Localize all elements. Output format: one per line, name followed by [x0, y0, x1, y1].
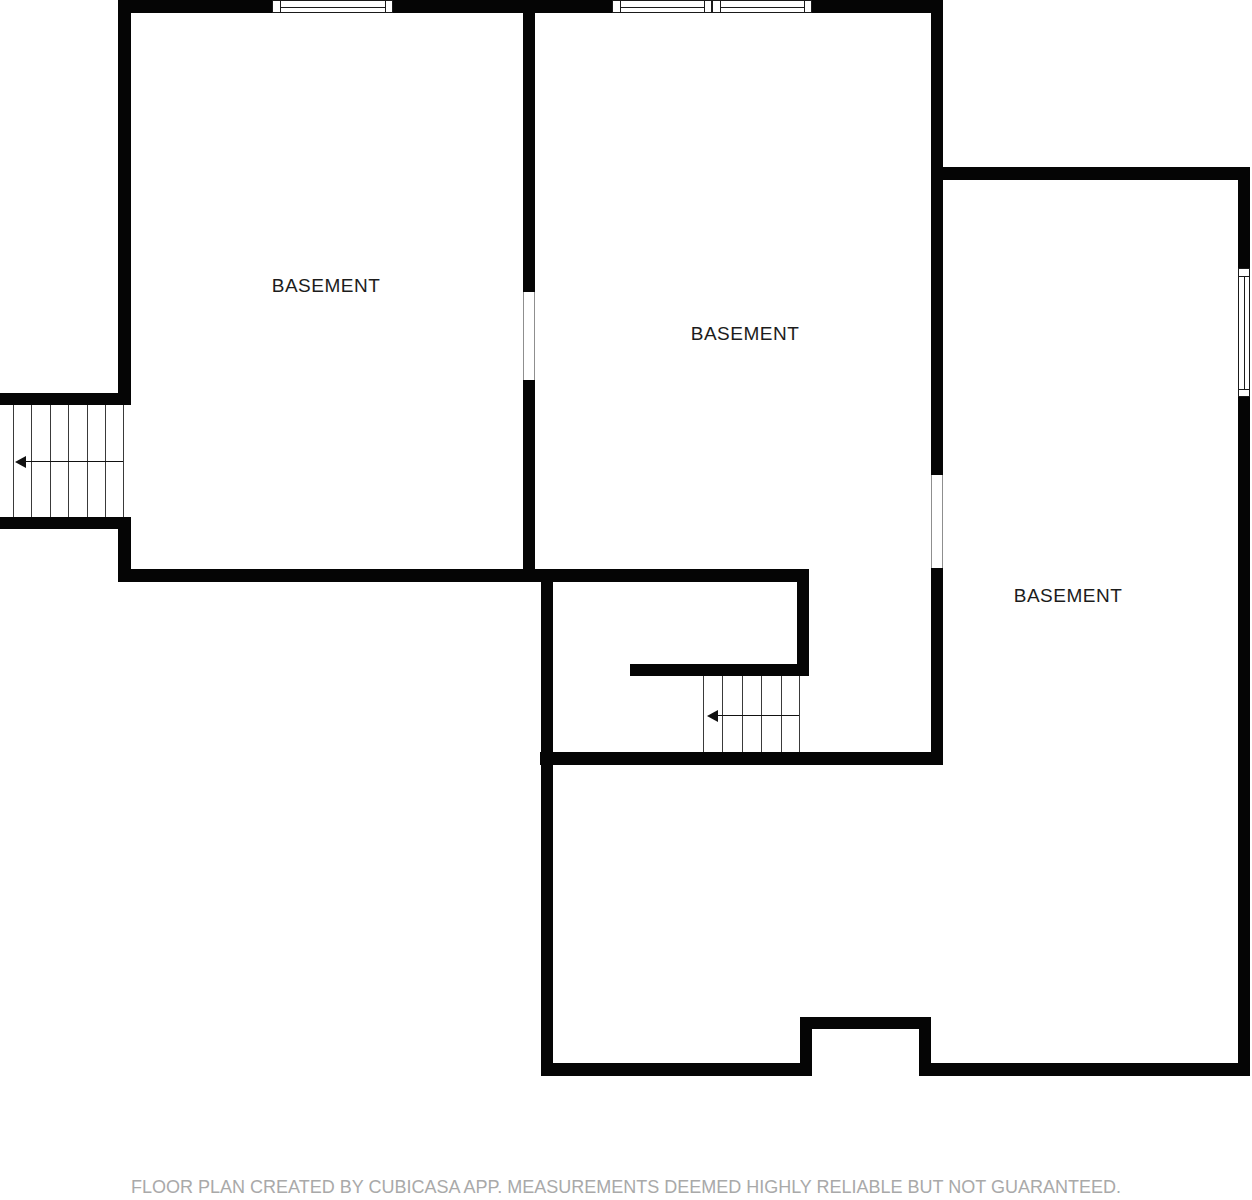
window-pane-line: [281, 7, 385, 8]
door-opening: [931, 475, 943, 568]
stair-direction-arrow: [24, 461, 123, 462]
stair-tread: [13, 405, 14, 517]
door-opening: [523, 292, 535, 380]
window-pane-line: [804, 1, 805, 12]
wall: [541, 569, 553, 1076]
stair-tread: [722, 676, 723, 752]
stair-tread: [123, 405, 124, 517]
wall: [1238, 167, 1250, 268]
room-label: BASEMENT: [1014, 585, 1123, 607]
staircase-interior: [703, 676, 800, 752]
room-label: BASEMENT: [691, 323, 800, 345]
wall: [1238, 397, 1250, 1076]
footer-disclaimer: FLOOR PLAN CREATED BY CUBICASA APP. MEAS…: [131, 1177, 1121, 1198]
stair-tread: [799, 676, 800, 752]
stair-arrowhead-icon: [707, 710, 718, 722]
stair-tread: [742, 676, 743, 752]
window-pane-line: [621, 7, 704, 8]
stair-arrowhead-icon: [15, 456, 26, 468]
window-pane-line: [1244, 277, 1245, 389]
stair-tread: [781, 676, 782, 752]
window-icon: [712, 0, 812, 13]
floor-plan-canvas: FLOOR PLAN CREATED BY CUBICASA APP. MEAS…: [0, 0, 1252, 1200]
window-icon: [1238, 268, 1250, 397]
window-icon: [612, 0, 712, 13]
wall: [541, 1063, 812, 1076]
wall: [797, 569, 809, 676]
window-pane-line: [1239, 389, 1249, 390]
room-label: BASEMENT: [272, 275, 381, 297]
stair-tread: [761, 676, 762, 752]
window-pane-line: [704, 1, 705, 12]
wall: [523, 0, 535, 292]
wall: [0, 393, 131, 405]
wall: [931, 568, 943, 765]
staircase-left-exterior: [0, 405, 125, 517]
stair-direction-arrow: [716, 715, 799, 716]
wall: [630, 664, 809, 676]
wall: [931, 167, 1250, 180]
window-pane-line: [721, 7, 804, 8]
wall: [919, 1063, 1250, 1076]
wall: [0, 517, 131, 529]
wall: [931, 0, 943, 475]
wall: [118, 0, 131, 405]
stair-tread: [703, 676, 704, 752]
wall: [523, 380, 535, 575]
window-icon: [272, 0, 393, 13]
wall: [540, 752, 943, 765]
window-pane-line: [385, 1, 386, 12]
wall: [800, 1017, 931, 1029]
wall: [118, 569, 809, 582]
